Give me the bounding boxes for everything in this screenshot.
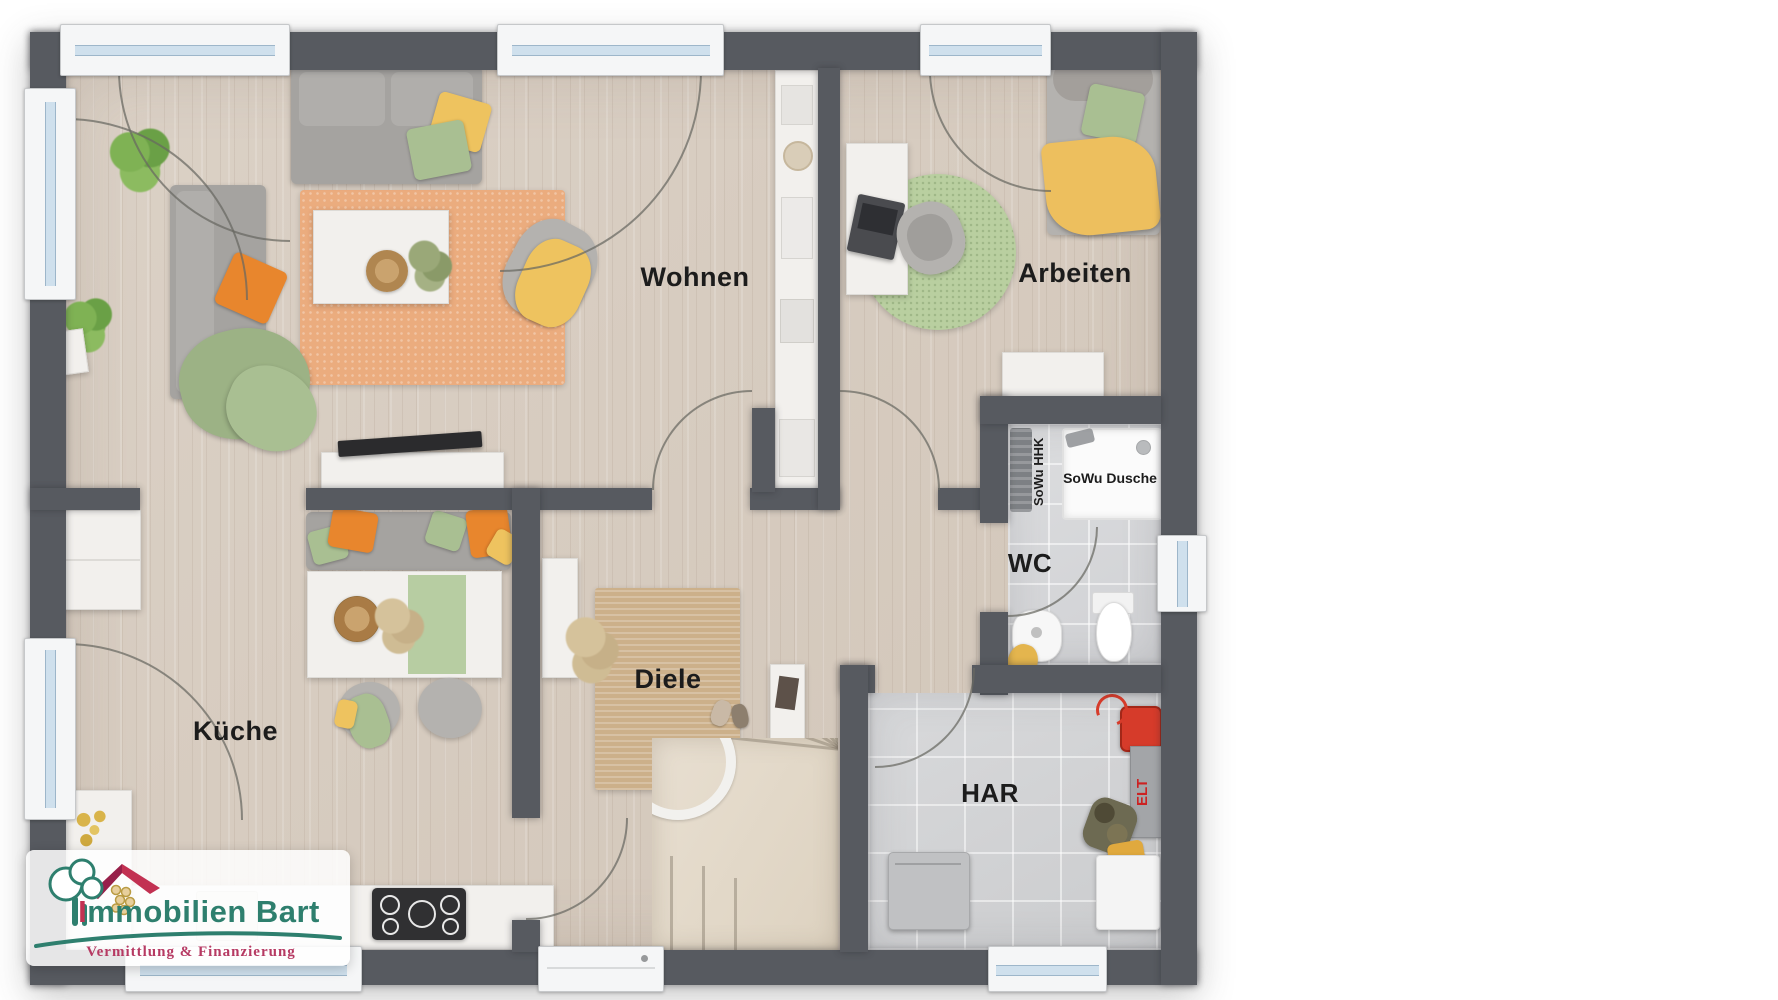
cooktop [372, 888, 466, 940]
burner [380, 895, 400, 915]
hall-dried-plant [560, 602, 624, 690]
dried-flowers [366, 588, 432, 658]
burner [442, 918, 459, 935]
shower-drain [1136, 440, 1151, 455]
chair-cushion [901, 208, 958, 266]
sofa-cushion [299, 72, 385, 126]
wall-shelf-office [818, 68, 840, 510]
window-left-living [24, 88, 76, 300]
cabinet-divider [60, 559, 140, 561]
wall-bath-har [972, 665, 1161, 693]
floor-plan-canvas: Wohnen Arbeiten Küche Diele WC HAR SoWu … [0, 0, 1778, 1000]
burner [382, 918, 399, 935]
daybed-throw-yellow [1040, 132, 1161, 239]
tall-shelf [775, 70, 820, 502]
shelf-items [781, 85, 813, 125]
towel-radiator [1010, 428, 1032, 512]
wall-door-jamb [752, 408, 775, 492]
wall-kitchen-hall-lower [512, 920, 540, 952]
window-glass [996, 965, 1099, 976]
washing-machine [888, 852, 970, 930]
shelf-items [779, 419, 815, 477]
entry-door [538, 946, 664, 992]
window-glass [929, 45, 1043, 56]
logo-title: Immobilien Bart [54, 894, 344, 930]
logo-subtitle: Vermittlung & Finanzierung [46, 944, 336, 961]
window-right-wc [1157, 535, 1207, 612]
room-label-kueche: Küche [178, 716, 293, 747]
green-pillow [406, 119, 473, 181]
wall-right [1161, 32, 1197, 985]
laptop-screen [857, 203, 898, 236]
washer-lid-line [895, 863, 961, 865]
wall-hall-stub [938, 488, 982, 510]
window-glass [1177, 541, 1188, 607]
window-glass [45, 102, 56, 287]
window-top-office [920, 24, 1051, 76]
wall-kitchen-hall-upper [512, 488, 540, 818]
window-glass [512, 45, 710, 56]
stair-tread [670, 856, 673, 950]
agency-logo: Immobilien Bart Vermittlung & Finanzieru… [26, 850, 350, 966]
shelf-ring-decor [783, 141, 813, 171]
wall-office-bath [980, 396, 1161, 424]
room-label-diele: Diele [618, 664, 718, 695]
terrace-door-kitchen [24, 638, 76, 820]
shelf-books [780, 299, 814, 343]
label-electrical: ELT [1134, 762, 1156, 822]
faucet [1031, 627, 1042, 638]
window-top-living-1 [60, 24, 290, 76]
burner [408, 900, 436, 928]
door-handle [641, 955, 648, 962]
window-glass [140, 965, 347, 976]
door-glass [45, 650, 56, 808]
room-label-har: HAR [952, 778, 1028, 809]
door-panel-line [547, 967, 655, 969]
room-label-wohnen: Wohnen [625, 262, 765, 293]
wall-living-kitchen [306, 488, 652, 510]
bench-pillow-orange [327, 506, 379, 553]
stair-railing [652, 738, 736, 820]
room-label-wc: WC [1002, 548, 1058, 579]
kitchen-cabinet [59, 510, 141, 610]
window-top-living-2 [497, 24, 724, 76]
label-shower: SoWu Dusche [1062, 470, 1158, 486]
stair-tread [702, 866, 705, 950]
wall-living-kitchen-stub [30, 488, 140, 510]
stair-tread [734, 878, 737, 950]
panel-decor [775, 676, 799, 710]
table-plant [402, 230, 458, 296]
window-bottom-har [988, 946, 1107, 992]
dryer-appliance [1096, 855, 1160, 930]
label-towel-radiator: SoWu HHK [1032, 428, 1052, 516]
staircase [652, 738, 838, 950]
shelf-items [781, 197, 813, 259]
office-sideboard [1002, 352, 1104, 398]
window-glass [75, 45, 276, 56]
tv-sideboard [321, 452, 504, 490]
toilet-bowl [1096, 602, 1132, 662]
burner [440, 895, 460, 915]
wall-har-left [840, 665, 868, 952]
room-label-arbeiten: Arbeiten [1000, 258, 1150, 289]
